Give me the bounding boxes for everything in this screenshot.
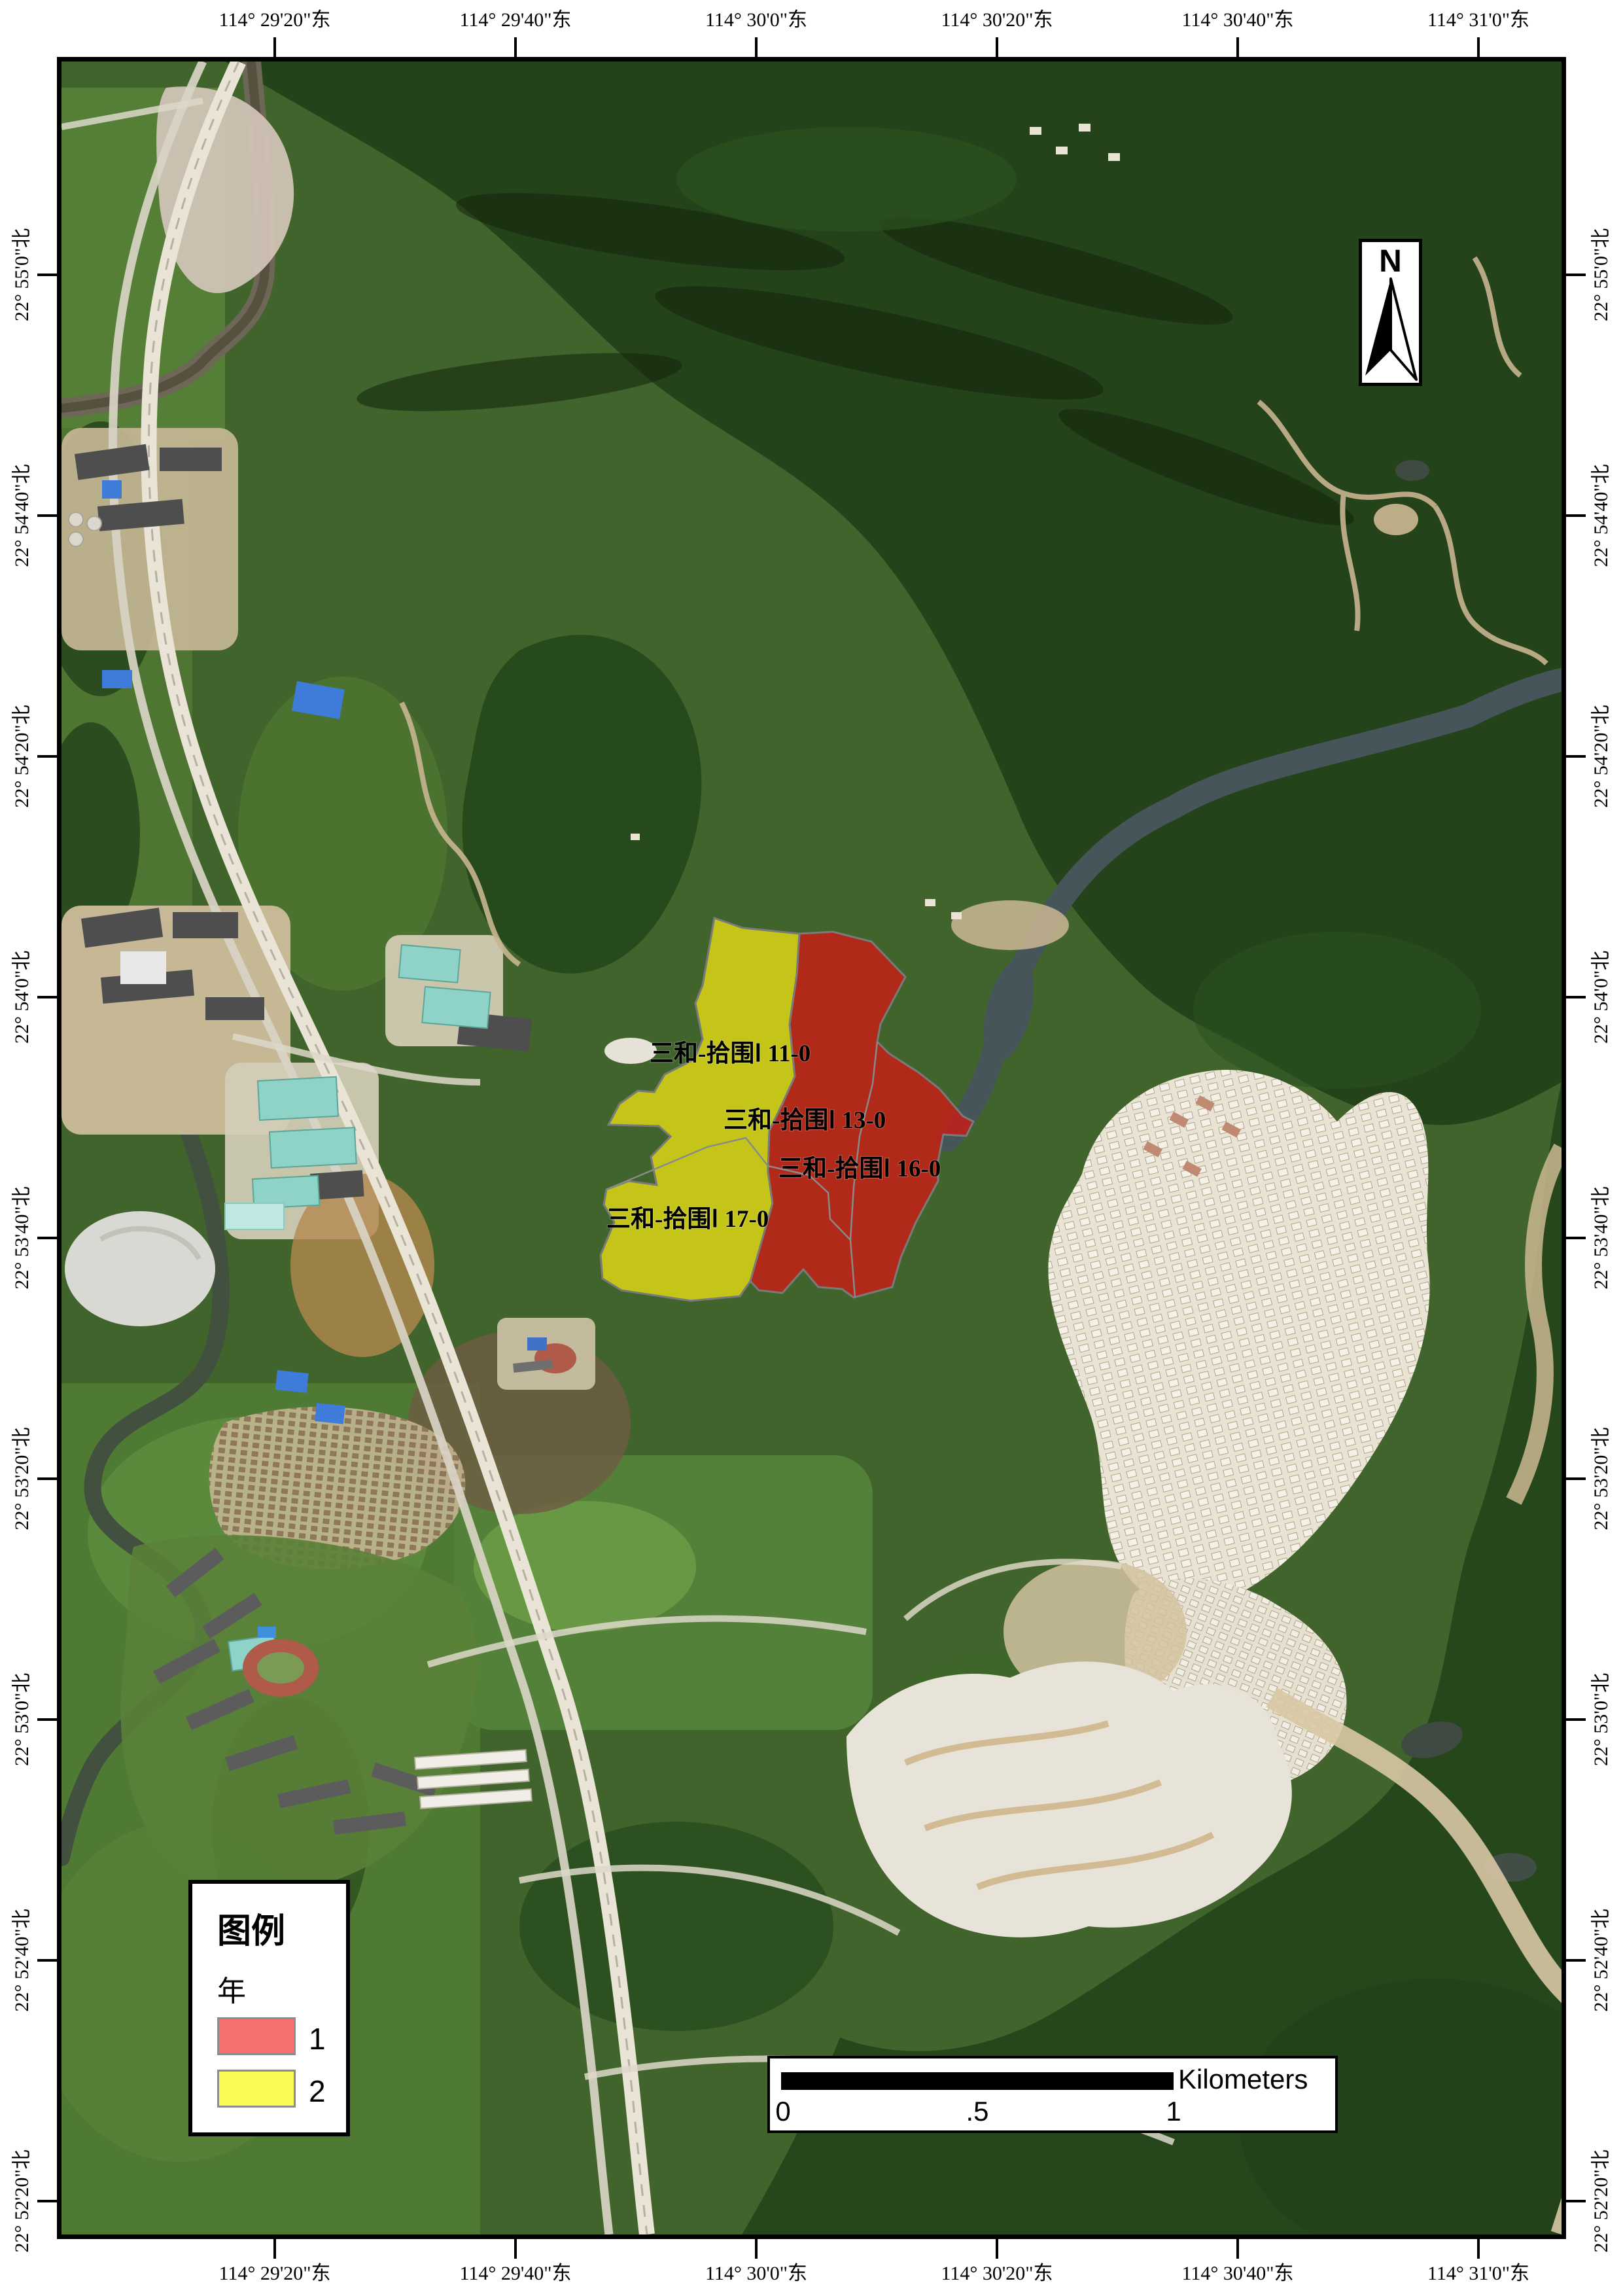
lon-label-bottom-1: 114° 29'40"东 — [459, 2264, 571, 2284]
lat-label-right-2: 22° 54'20"北 — [1592, 705, 1611, 807]
tick-bottom-5 — [1477, 2239, 1480, 2259]
legend-swatch-year2 — [217, 2070, 296, 2108]
row-warehouses — [415, 1750, 532, 1809]
school — [497, 1318, 595, 1390]
north-arrow-icon — [1362, 242, 1419, 383]
tick-left-8 — [37, 2200, 57, 2202]
parcel-label-11-0: 三和-拾围Ⅰ 11-0 — [650, 1040, 811, 1067]
tick-left-0 — [37, 274, 57, 276]
lat-label-left-8: 22° 52'20"北 — [12, 2149, 32, 2252]
lat-label-left-5: 22° 53'20"北 — [12, 1427, 32, 1530]
tick-right-1 — [1566, 514, 1586, 517]
tick-right-2 — [1566, 755, 1586, 758]
tick-top-3 — [996, 37, 998, 57]
lon-label-bottom-2: 114° 30'0"东 — [705, 2264, 807, 2284]
lat-label-left-2: 22° 54'20"北 — [12, 705, 32, 807]
tick-bottom-1 — [514, 2239, 517, 2259]
parcel-label-16-0: 三和-拾围Ⅰ 16-0 — [778, 1155, 941, 1182]
tick-top-1 — [514, 37, 517, 57]
lat-label-left-6: 22° 53'0"北 — [12, 1673, 32, 1766]
lat-label-left-3: 22° 54'0"北 — [12, 951, 32, 1044]
lon-label-bottom-5: 114° 31'0"东 — [1427, 2264, 1529, 2284]
lat-label-left-0: 22° 55'0"北 — [12, 228, 32, 321]
lat-label-right-5: 22° 53'20"北 — [1592, 1427, 1611, 1530]
lon-label-top-1: 114° 29'40"东 — [459, 10, 571, 30]
lon-label-top-4: 114° 30'40"东 — [1181, 10, 1293, 30]
tick-top-4 — [1236, 37, 1239, 57]
tick-right-6 — [1566, 1718, 1586, 1721]
lat-label-left-4: 22° 53'40"北 — [12, 1186, 32, 1289]
lon-label-bottom-0: 114° 29'20"东 — [218, 2264, 330, 2284]
tick-right-8 — [1566, 2200, 1586, 2202]
tick-top-0 — [273, 37, 276, 57]
legend-value-year1: 1 — [309, 2021, 326, 2057]
tick-left-2 — [37, 755, 57, 758]
lon-label-bottom-4: 114° 30'40"东 — [1181, 2264, 1293, 2284]
lat-label-right-7: 22° 52'40"北 — [1592, 1909, 1611, 2011]
parcel-label-13-0: 三和-拾围Ⅰ 13-0 — [724, 1106, 886, 1134]
tick-bottom-2 — [755, 2239, 758, 2259]
tick-left-6 — [37, 1718, 57, 1721]
lat-label-left-1: 22° 54'40"北 — [12, 464, 32, 567]
legend-field-label: 年 — [217, 1968, 246, 2009]
scale-bar-unit: Kilometers — [1178, 2064, 1308, 2095]
lat-label-right-8: 22° 52'20"北 — [1592, 2149, 1611, 2252]
tick-bottom-3 — [996, 2239, 998, 2259]
tick-top-2 — [755, 37, 758, 57]
lat-label-right-6: 22° 53'0"北 — [1592, 1673, 1611, 1766]
lon-label-top-0: 114° 29'20"东 — [218, 10, 330, 30]
tick-right-7 — [1566, 1959, 1586, 1962]
tick-bottom-0 — [273, 2239, 276, 2259]
tick-right-4 — [1566, 1237, 1586, 1239]
legend-value-year2: 2 — [309, 2074, 326, 2109]
tick-left-5 — [37, 1477, 57, 1480]
scale-bar: Kilometers 0 .5 1 — [767, 2056, 1338, 2133]
lon-label-top-3: 114° 30'20"东 — [941, 10, 1053, 30]
lat-label-right-4: 22° 53'40"北 — [1592, 1186, 1611, 1289]
north-arrow: N — [1359, 239, 1422, 386]
lon-label-top-5: 114° 31'0"东 — [1427, 10, 1529, 30]
tick-right-0 — [1566, 274, 1586, 276]
lat-label-left-7: 22° 52'40"北 — [12, 1909, 32, 2011]
scale-bar-tick-05: .5 — [966, 2096, 988, 2127]
tick-top-5 — [1477, 37, 1480, 57]
tick-right-5 — [1566, 1477, 1586, 1480]
lat-label-right-1: 22° 54'40"北 — [1592, 464, 1611, 567]
lat-label-right-0: 22° 55'0"北 — [1592, 228, 1611, 321]
lat-label-right-3: 22° 54'0"北 — [1592, 951, 1611, 1044]
tick-left-1 — [37, 514, 57, 517]
legend: 图例 年 1 2 — [188, 1880, 350, 2136]
tick-left-3 — [37, 996, 57, 998]
legend-swatch-year1 — [217, 2017, 296, 2055]
tick-left-7 — [37, 1959, 57, 1962]
scale-bar-tick-1: 1 — [1166, 2096, 1181, 2127]
lon-label-top-2: 114° 30'0"东 — [705, 10, 807, 30]
parcel-label-17-0: 三和-拾围Ⅰ 17-0 — [606, 1205, 769, 1233]
tick-left-4 — [37, 1237, 57, 1239]
tick-bottom-4 — [1236, 2239, 1239, 2259]
tick-right-3 — [1566, 996, 1586, 998]
lon-label-bottom-3: 114° 30'20"东 — [941, 2264, 1053, 2284]
legend-title: 图例 — [217, 1903, 285, 1952]
scale-bar-rule — [781, 2072, 1174, 2090]
scale-bar-tick-0: 0 — [775, 2096, 790, 2127]
map-layout-page: 三和-拾围Ⅰ 11-0 三和-拾围Ⅰ 13-0 三和-拾围Ⅰ 16-0 三和-拾… — [0, 0, 1623, 2296]
